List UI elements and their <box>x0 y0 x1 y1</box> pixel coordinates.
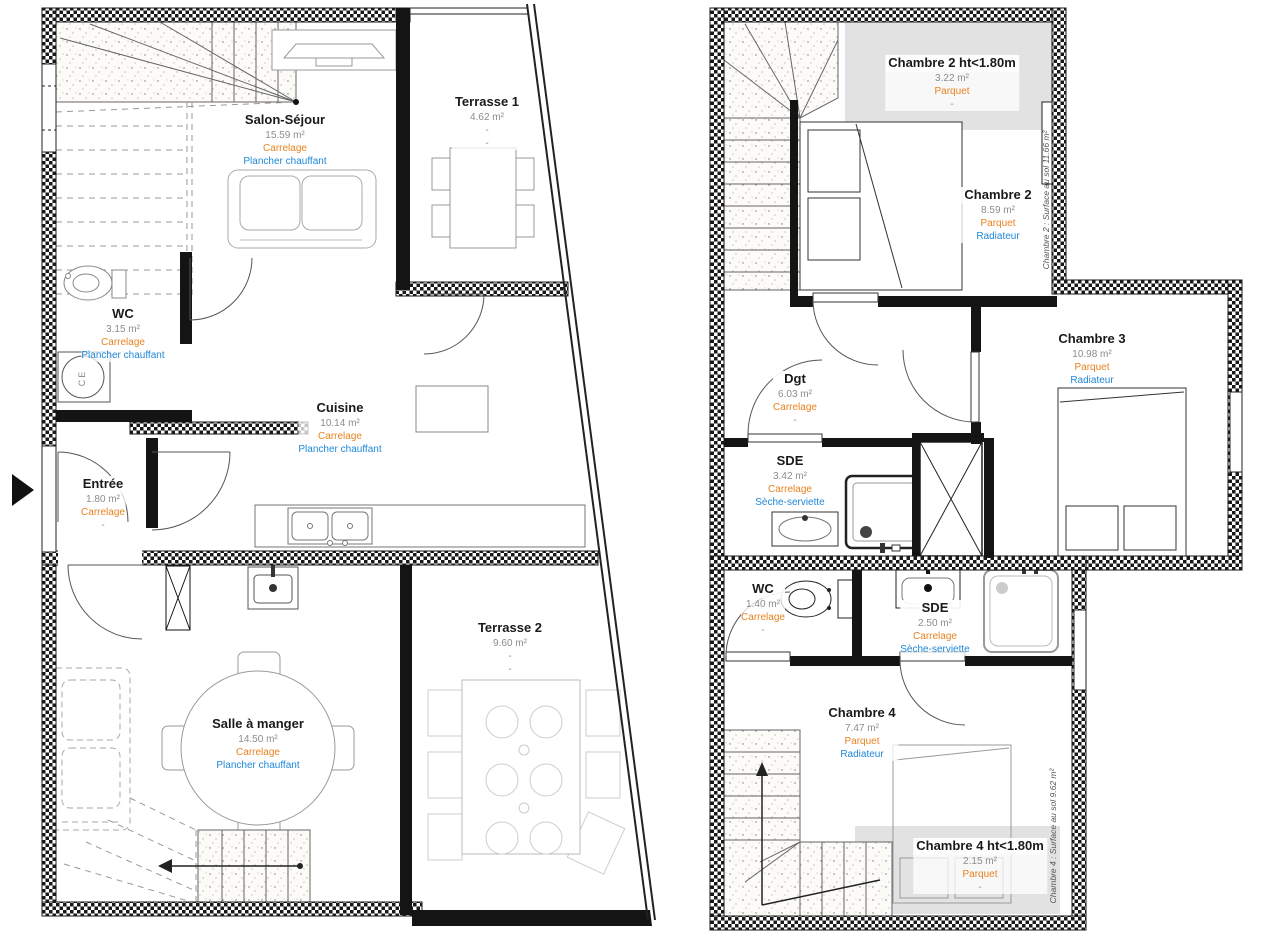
room-floor: Parquet <box>913 868 1047 881</box>
room-label-terrasse-2: Terrasse 2 9.60 m² - - <box>475 620 545 676</box>
room-label-chambre3: Chambre 3 10.98 m² Parquet Radiateur <box>1055 331 1128 387</box>
room-label-wc: WC 3.15 m² Carrelage Plancher chauffant <box>81 306 164 362</box>
room-area: 10.14 m² <box>298 417 381 430</box>
room-floor: Carrelage <box>81 336 164 349</box>
room-area: 14.50 m² <box>209 733 307 746</box>
room-name: Chambre 3 <box>1055 331 1128 348</box>
room-name: SDE <box>755 453 824 470</box>
room-area: 15.59 m² <box>242 129 328 142</box>
toilet <box>64 266 126 300</box>
room-floor: Parquet <box>1055 361 1128 374</box>
floor-plan-drawing <box>0 0 1280 939</box>
room-area: 3.15 m² <box>81 323 164 336</box>
room-heating: Plancher chauffant <box>81 349 164 362</box>
room-floor: Carrelage <box>298 430 381 443</box>
room-area: 2.50 m² <box>900 617 969 630</box>
room-floor: Carrelage <box>755 483 824 496</box>
room-heating: Plancher chauffant <box>242 155 328 168</box>
room-label-sde2: SDE 2.50 m² Carrelage Sèche-serviette <box>900 600 969 656</box>
closet-box <box>920 442 982 556</box>
kitchen-counter <box>255 505 585 547</box>
room-heating: Plancher chauffant <box>298 443 381 456</box>
room-floor: Carrelage <box>209 746 307 759</box>
room-label-entree: Entrée 1.80 m² Carrelage - <box>80 476 126 532</box>
room-floor: Carrelage <box>80 506 126 519</box>
room-name: Chambre 4 <box>825 705 898 722</box>
sofa-dashed <box>48 668 130 830</box>
appliance-box <box>166 566 190 630</box>
wall-note-chambre4: Chambre 4 : Surface au sol 9.62 m² <box>1048 769 1058 904</box>
room-floor: - <box>475 650 545 663</box>
room-floor: Parquet <box>825 735 898 748</box>
room-floor: - <box>452 124 522 137</box>
room-heating: - <box>741 624 785 637</box>
room-heating: Radiateur <box>961 230 1034 243</box>
room-floor: Carrelage <box>741 611 785 624</box>
shower <box>846 476 922 553</box>
room-heating: - <box>773 414 817 427</box>
room-label-chambre4-low: Chambre 4 ht<1.80m 2.15 m² Parquet - <box>913 838 1047 894</box>
ground-floor-plan <box>12 4 655 926</box>
room-label-chambre2: Chambre 2 8.59 m² Parquet Radiateur <box>961 187 1034 243</box>
room-heating: - <box>475 663 545 676</box>
room-area: 2.15 m² <box>913 855 1047 868</box>
room-floor: Carrelage <box>773 401 817 414</box>
room-name: Chambre 2 <box>961 187 1034 204</box>
room-label-sde1: SDE 3.42 m² Carrelage Sèche-serviette <box>755 453 824 509</box>
room-area: 4.62 m² <box>452 111 522 124</box>
room-name: Chambre 2 ht<1.80m <box>885 55 1019 72</box>
washbasin <box>772 512 838 546</box>
room-heating: Radiateur <box>825 748 898 761</box>
room-heating: Sèche-serviette <box>900 643 969 656</box>
room-name: Salon-Séjour <box>242 112 328 129</box>
room-name: WC <box>741 581 785 598</box>
room-name: WC <box>81 306 164 323</box>
room-heating: Plancher chauffant <box>209 759 307 772</box>
radiator <box>272 30 396 70</box>
terrace1-table <box>432 148 534 248</box>
room-area: 8.59 m² <box>961 204 1034 217</box>
room-heating: - <box>885 98 1019 111</box>
floor-plan-canvas: Salon-Séjour 15.59 m² Carrelage Plancher… <box>0 0 1280 939</box>
room-floor: Carrelage <box>242 142 328 155</box>
sofa <box>228 170 376 248</box>
room-area: 3.22 m² <box>885 72 1019 85</box>
room-area: 6.03 m² <box>773 388 817 401</box>
room-floor: Parquet <box>885 85 1019 98</box>
room-area: 1.40 m² <box>741 598 785 611</box>
bed-chambre2 <box>800 122 962 290</box>
room-floor: Carrelage <box>900 630 969 643</box>
room-name: Dgt <box>773 371 817 388</box>
room-heating: - <box>452 137 522 150</box>
room-name: Terrasse 2 <box>475 620 545 637</box>
room-label-chambre2-low: Chambre 2 ht<1.80m 3.22 m² Parquet - <box>885 55 1019 111</box>
room-label-wc-upper: WC 1.40 m² Carrelage - <box>741 581 785 637</box>
room-heating: Radiateur <box>1055 374 1128 387</box>
terrace2-table <box>428 680 625 874</box>
room-area: 3.42 m² <box>755 470 824 483</box>
room-label-terrasse-1: Terrasse 1 4.62 m² - - <box>452 94 522 150</box>
cooktop <box>416 386 488 432</box>
room-label-cuisine: Cuisine 10.14 m² Carrelage Plancher chau… <box>298 400 381 456</box>
shower-tub <box>984 562 1058 652</box>
entry-arrow <box>12 474 34 506</box>
room-heating: - <box>80 519 126 532</box>
room-area: 1.80 m² <box>80 493 126 506</box>
toilet-upper <box>781 580 855 618</box>
room-label-chambre4: Chambre 4 7.47 m² Parquet Radiateur <box>825 705 898 761</box>
room-label-salon-sejour: Salon-Séjour 15.59 m² Carrelage Plancher… <box>242 112 328 168</box>
room-name: SDE <box>900 600 969 617</box>
wall-note-chambre2: Chambre 2 : Surface au sol 11.66 m² <box>1041 131 1051 270</box>
room-floor: Parquet <box>961 217 1034 230</box>
room-heating: - <box>913 881 1047 894</box>
room-name: Entrée <box>80 476 126 493</box>
room-label-salle-a-manger: Salle à manger 14.50 m² Carrelage Planch… <box>209 716 307 772</box>
bed-chambre3 <box>1058 388 1186 556</box>
room-label-dgt: Dgt 6.03 m² Carrelage - <box>773 371 817 427</box>
room-name: Salle à manger <box>209 716 307 733</box>
water-heater-label: CE <box>77 370 87 387</box>
room-name: Terrasse 1 <box>452 94 522 111</box>
room-area: 10.98 m² <box>1055 348 1128 361</box>
room-name: Chambre 4 ht<1.80m <box>913 838 1047 855</box>
room-area: 9.60 m² <box>475 637 545 650</box>
room-heating: Sèche-serviette <box>755 496 824 509</box>
room-name: Cuisine <box>298 400 381 417</box>
sink <box>248 565 298 609</box>
room-area: 7.47 m² <box>825 722 898 735</box>
